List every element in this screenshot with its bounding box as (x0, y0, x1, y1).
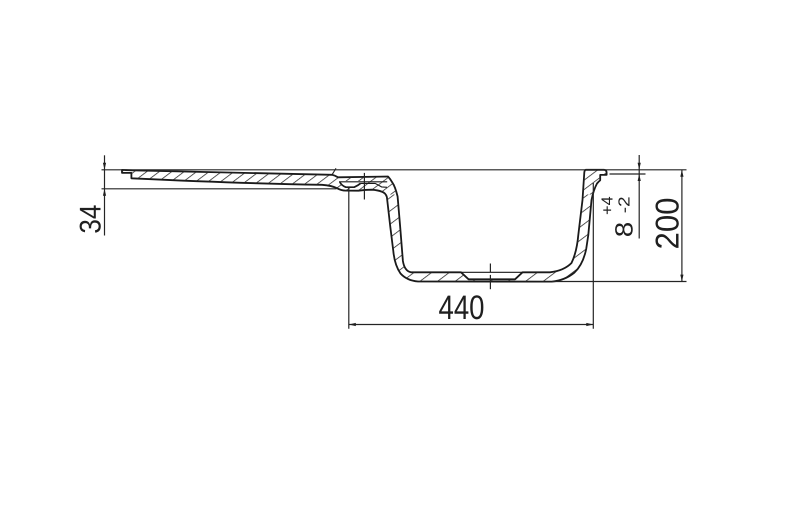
svg-text:200: 200 (649, 198, 686, 250)
svg-text:-2: -2 (617, 196, 634, 213)
svg-text:+4: +4 (599, 196, 616, 215)
svg-text:440: 440 (439, 289, 485, 327)
svg-text:34: 34 (75, 205, 108, 234)
svg-text:8: 8 (611, 222, 639, 238)
